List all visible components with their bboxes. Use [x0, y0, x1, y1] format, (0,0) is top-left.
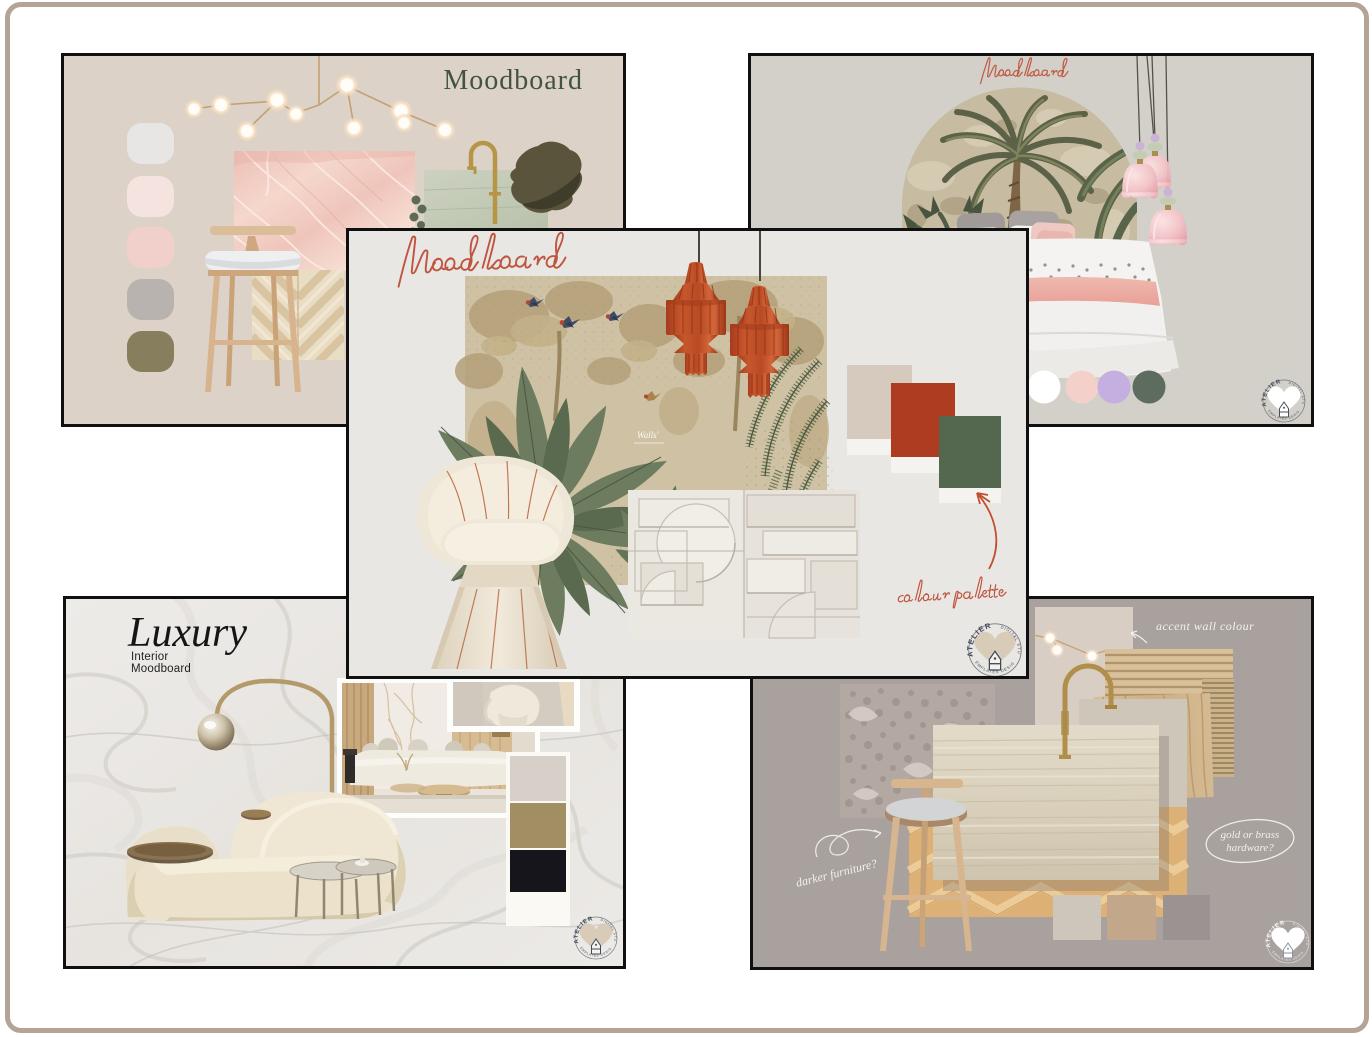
- svg-text:Moodboard: Moodboard: [443, 65, 583, 96]
- svg-text:darker furniture?: darker furniture?: [794, 856, 878, 890]
- svg-text:hardware?: hardware?: [1226, 842, 1274, 854]
- svg-text:Luxury: Luxury: [127, 610, 247, 656]
- svg-text:Walls': Walls': [637, 430, 660, 440]
- svg-text:gold or brass: gold or brass: [1221, 829, 1280, 841]
- svg-text:accent wall colour: accent wall colour: [1156, 619, 1254, 633]
- svg-text:Interior: Interior: [131, 651, 168, 663]
- svg-text:Moodboard: Moodboard: [131, 663, 191, 675]
